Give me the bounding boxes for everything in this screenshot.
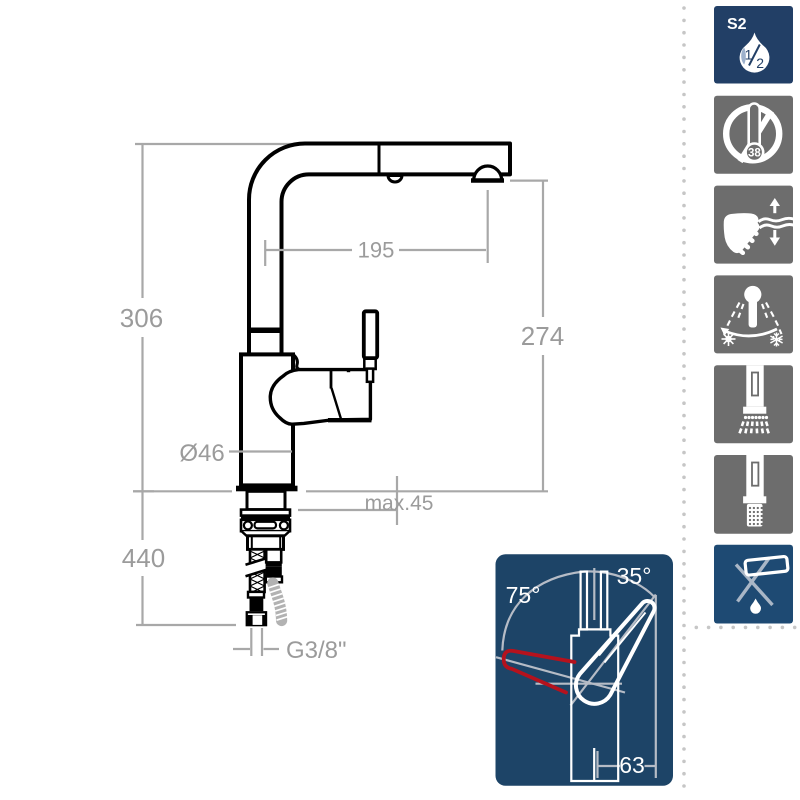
svg-text:306: 306 <box>120 303 163 333</box>
svg-text:195: 195 <box>358 238 395 263</box>
svg-text:G3/8": G3/8" <box>286 637 347 664</box>
svg-text:63: 63 <box>619 752 645 778</box>
svg-text:max.45: max.45 <box>365 492 434 515</box>
svg-text:75°: 75° <box>506 582 541 608</box>
svg-text:35°: 35° <box>617 563 652 589</box>
svg-text:2: 2 <box>756 55 764 71</box>
svg-text:Ø46: Ø46 <box>179 440 224 467</box>
svg-text:38: 38 <box>748 148 761 160</box>
svg-text:440: 440 <box>122 543 165 573</box>
svg-text:274: 274 <box>521 321 564 351</box>
svg-text:S2: S2 <box>727 16 747 33</box>
